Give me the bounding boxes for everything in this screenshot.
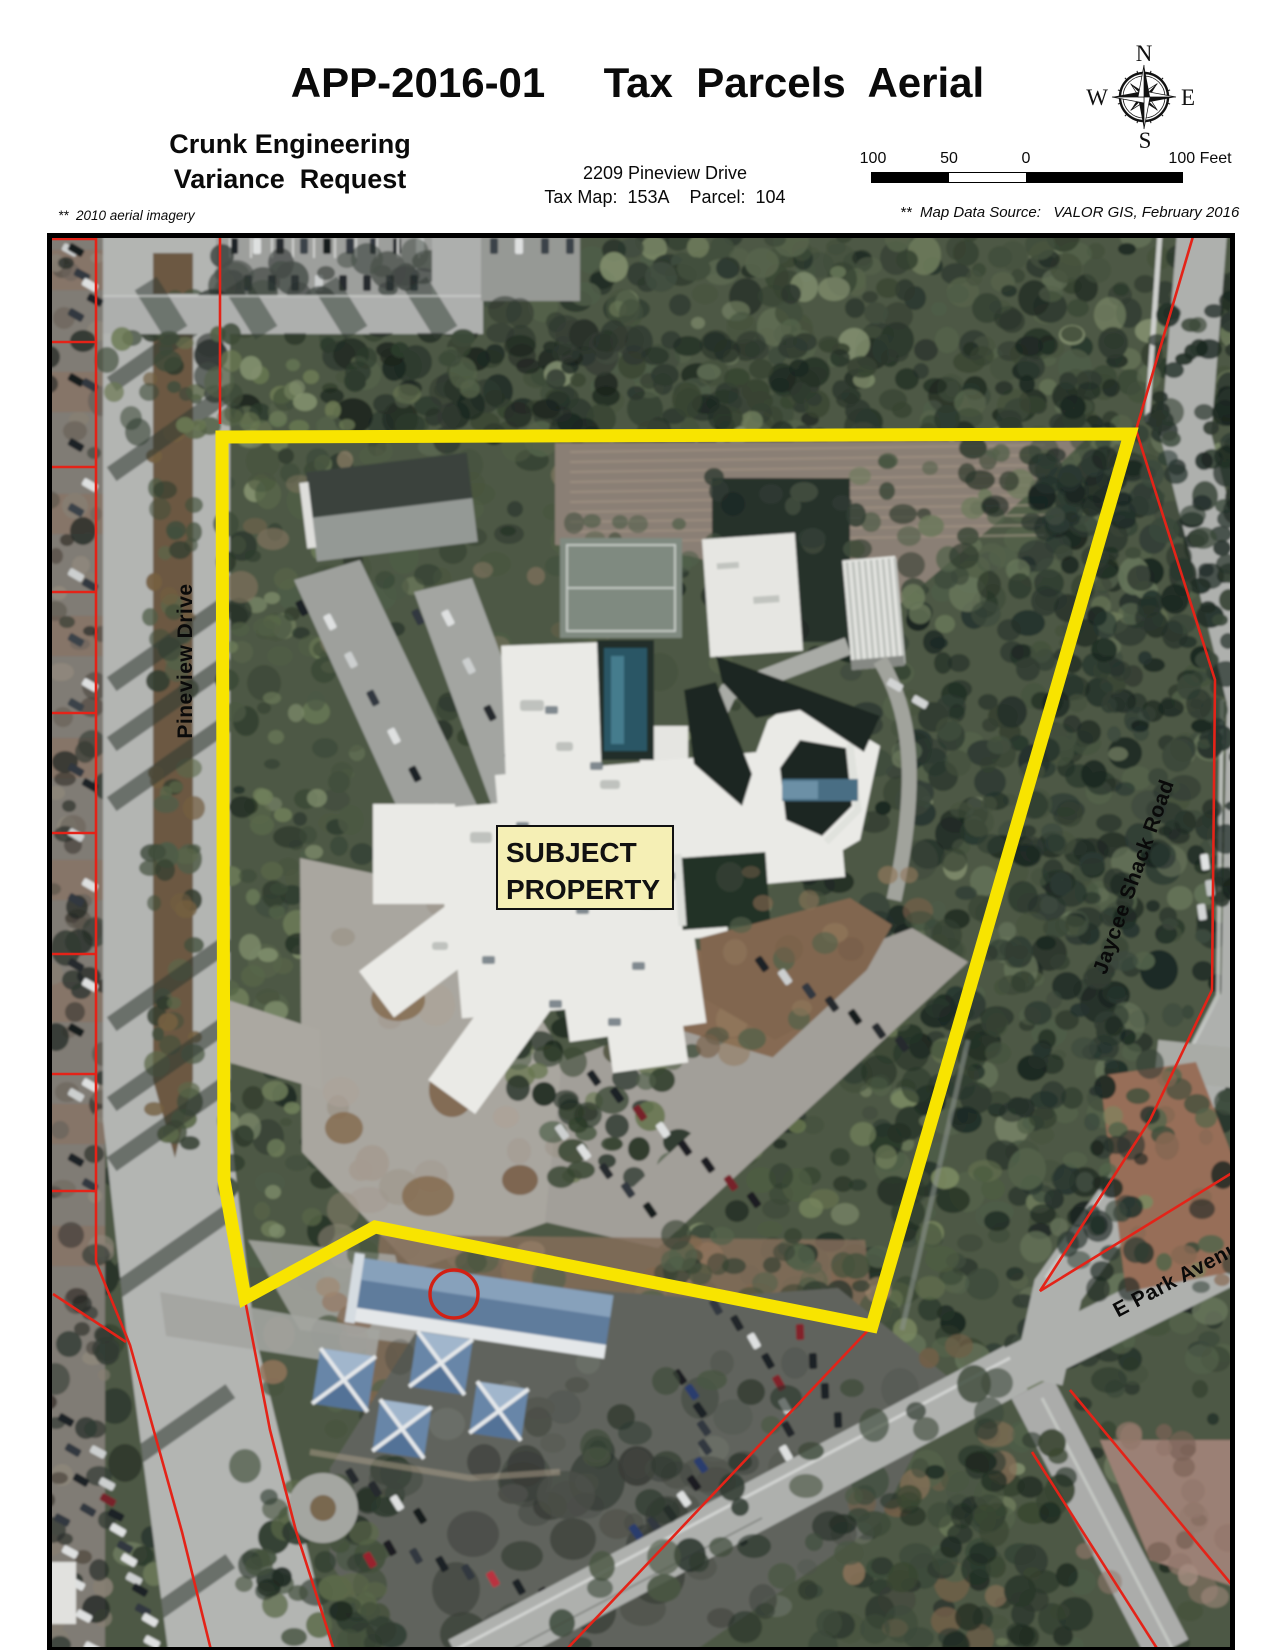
svg-text:S: S [1139, 128, 1152, 152]
svg-text:W: W [1086, 85, 1108, 110]
svg-text:SUBJECT: SUBJECT [506, 837, 637, 868]
svg-text:PROPERTY: PROPERTY [506, 874, 660, 905]
svg-text:E: E [1181, 85, 1195, 110]
svg-text:N: N [1136, 42, 1153, 66]
svg-text:Pineview Drive: Pineview Drive [174, 583, 197, 738]
